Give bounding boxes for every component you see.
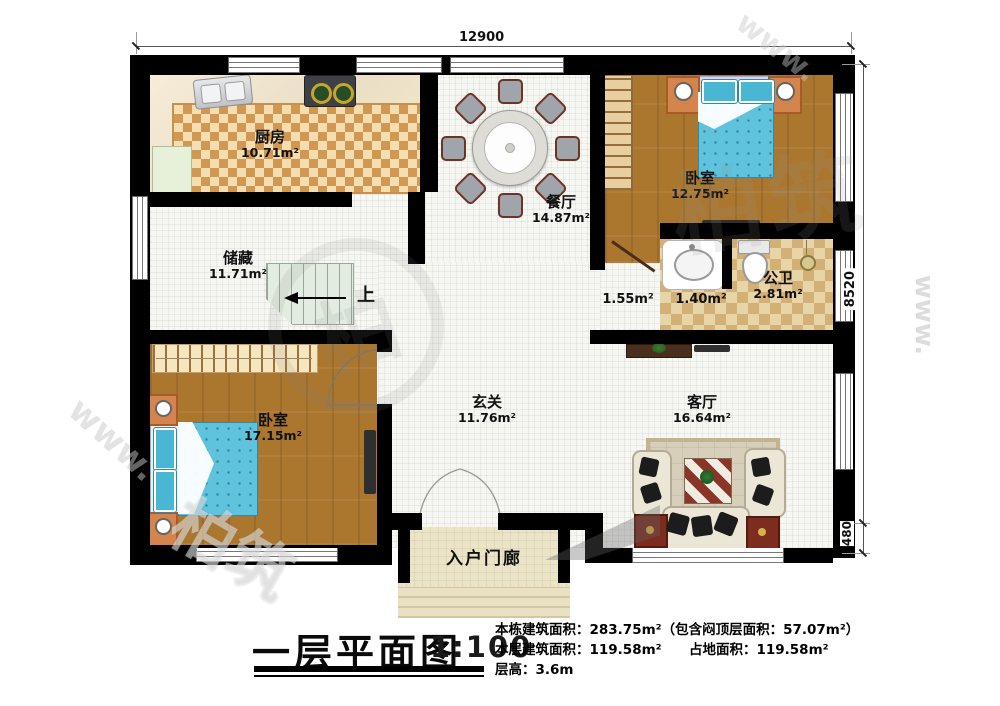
dining-chair (498, 79, 523, 104)
dim-top-label: 12900 (455, 30, 508, 45)
bedroom1-label: 卧室 12.75m² (671, 170, 729, 202)
watermark-url: www. (909, 275, 939, 355)
corridor-area: 1.55m² (602, 293, 653, 308)
bathroom-label: 公卫 2.81m² (753, 270, 802, 302)
info-line-2b: 占地面积：119.58m² (689, 642, 829, 658)
window-kitchen-top-1 (228, 57, 300, 73)
nightstand (148, 512, 178, 548)
nightstand-decor (155, 518, 172, 535)
bedroom2-name: 卧室 (244, 412, 302, 429)
sofa-pillow (638, 456, 659, 477)
build-info: 本栋建筑面积：283.75m²（包含闷顶层面积：57.07m²） 本层建筑面积：… (495, 620, 859, 680)
bedroom1-area: 12.75m² (671, 187, 729, 201)
living-name: 客厅 (673, 394, 731, 411)
storage-label: 储藏 11.71m² (209, 250, 267, 282)
floor-plan-canvas: 上 (0, 0, 1000, 706)
kitchen-name: 厨房 (241, 129, 299, 146)
living-area: 16.64m² (673, 411, 731, 425)
stairs-direction-line (296, 297, 346, 299)
wall-porch-left (398, 527, 410, 583)
sofa-pillow (751, 457, 772, 478)
porch-steps (398, 587, 570, 618)
stairs-up-text: 上 (357, 285, 375, 306)
info-line-2: 本层建筑面积：119.58m² 占地面积：119.58m² (495, 640, 859, 660)
bathroom-area: 2.81m² (753, 287, 802, 301)
wall-bedroom2-right-upper (377, 330, 392, 352)
nightstand-decor (155, 400, 172, 417)
bedroom1-name: 卧室 (671, 170, 729, 187)
stairs-up-label: 上 (357, 286, 375, 307)
dim-ext (851, 32, 852, 54)
wall-kitchen-bottom (150, 192, 352, 207)
kitchen-label: 厨房 10.71m² (241, 129, 299, 161)
dining-name: 餐厅 (532, 194, 590, 211)
sink-basin (224, 81, 246, 102)
window-storage-left (132, 196, 148, 280)
entrance-double-door-arcs (419, 468, 501, 515)
storage-name: 储藏 (209, 250, 267, 267)
dining-area: 14.87m² (532, 211, 590, 225)
watermark-url-text: www. (909, 275, 939, 355)
nightstand-decor (674, 82, 693, 101)
porch-label: 入户门廊 (446, 550, 522, 570)
bathroom-faucet (689, 244, 695, 250)
wall-hall-bottom-right (498, 513, 588, 530)
dining-chair (441, 136, 466, 161)
dim-right-value: 8520 (843, 271, 858, 307)
dim-right-label: 8520 (843, 268, 858, 310)
kitchen-area: 10.71m² (241, 146, 299, 160)
wall-kitchen-right (420, 55, 438, 192)
washroom-label: 1.40m² (675, 293, 726, 308)
nightstand-decor (776, 82, 795, 101)
wall-bedroom1-bottom (660, 223, 833, 239)
kitchen-sink (193, 74, 254, 110)
side-table-red (634, 514, 668, 548)
dim-right-line (863, 64, 864, 554)
dim-right-lower-value: 480 (840, 521, 854, 546)
wall-bath-bottom (590, 330, 833, 344)
corridor-label: 1.55m² (602, 293, 653, 308)
bed1-pillow (702, 80, 737, 103)
bed2-pillow (154, 428, 176, 470)
floor-drain-cord (806, 240, 807, 255)
window-living-right (835, 373, 853, 470)
hall-label: 玄关 11.76m² (458, 394, 516, 426)
mat-plant (700, 470, 714, 484)
wall-left (130, 55, 150, 565)
bedroom2-door-arc (326, 346, 386, 408)
dim-right-lower-label: 480 (840, 521, 854, 546)
bedroom2-tv (364, 430, 376, 494)
window-living-bottom (632, 548, 784, 563)
window-dining-top (450, 57, 564, 73)
info-line-1: 本栋建筑面积：283.75m²（包含闷顶层面积：57.07m²） (495, 620, 859, 640)
wall-washroom-divider (722, 237, 732, 289)
stairs-arrow-head (284, 292, 298, 304)
dim-top-value: 12900 (459, 30, 504, 45)
stove-burner (311, 83, 332, 104)
porch-name: 入户门廊 (446, 550, 522, 570)
bed1-pillow (739, 80, 774, 103)
window-bedroom2-bottom (196, 548, 338, 562)
title-underline-thick (254, 666, 484, 672)
bathroom-name: 公卫 (753, 270, 802, 287)
storage-area: 11.71m² (209, 267, 267, 281)
title-underline-thin (254, 675, 484, 677)
dining-label: 餐厅 14.87m² (532, 194, 590, 226)
wall-porch-right (558, 527, 570, 583)
stove-burner (333, 83, 354, 104)
kitchen-stove (304, 75, 356, 107)
side-table-red (746, 516, 780, 550)
console-plant (652, 343, 666, 353)
nightstand (666, 76, 700, 114)
bed2-pillow (154, 470, 176, 512)
bedroom1-wardrobe (605, 76, 633, 190)
living-tv (694, 345, 730, 352)
window-bedroom1-right (835, 93, 853, 202)
sofa-pillow (691, 515, 714, 538)
wall-bedroom2-top (150, 330, 390, 344)
dining-chair (555, 136, 580, 161)
wall-storage-dining (408, 192, 425, 264)
bedroom2-wardrobe (152, 344, 318, 373)
bedroom2-area: 17.15m² (244, 429, 302, 443)
wardrobe-rod (156, 358, 312, 359)
table-gold-dot (646, 526, 654, 534)
nightstand (148, 394, 178, 426)
hall-area: 11.76m² (458, 411, 516, 425)
sink-basin (200, 83, 222, 104)
living-label: 客厅 16.64m² (673, 394, 731, 426)
info-line-2a: 本层建筑面积：119.58m² (495, 642, 662, 658)
dining-chair (498, 193, 523, 218)
wall-dining-bedroom1 (590, 55, 605, 270)
table-gold-dot (758, 528, 766, 536)
bedroom2-label: 卧室 17.15m² (244, 412, 302, 444)
dim-top-line (136, 46, 852, 47)
floor-drain (800, 255, 816, 271)
bathroom-sink (674, 249, 714, 281)
hall-name: 玄关 (458, 394, 516, 411)
kitchen-fridge (152, 146, 192, 194)
dining-table-center (505, 143, 515, 153)
washroom-area: 1.40m² (675, 293, 726, 308)
window-kitchen-top-2 (356, 57, 442, 73)
dim-ext (136, 32, 137, 54)
info-line-3: 层高：3.6m (495, 660, 859, 680)
